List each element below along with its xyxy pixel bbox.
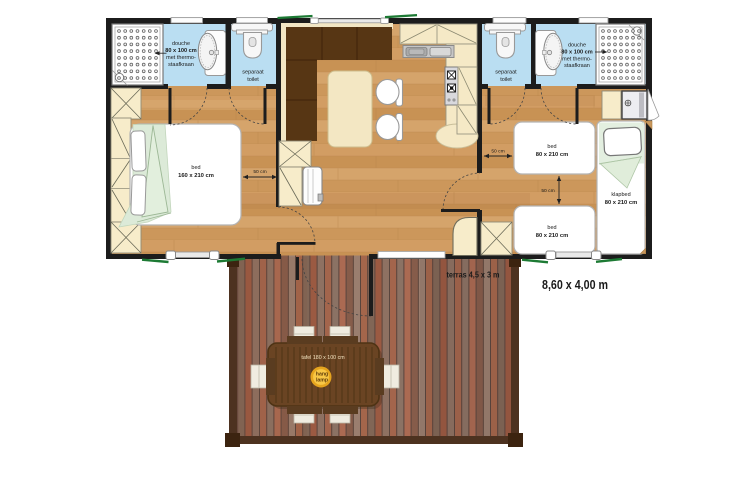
svg-text:bed: bed xyxy=(191,165,200,171)
svg-text:80 x 210 cm: 80 x 210 cm xyxy=(536,233,569,239)
svg-text:50 cm: 50 cm xyxy=(541,188,554,194)
svg-text:terras 4,5 x 3 m: terras 4,5 x 3 m xyxy=(447,271,500,280)
svg-text:80 x 210 cm: 80 x 210 cm xyxy=(605,200,638,206)
svg-text:toilet: toilet xyxy=(500,77,512,83)
svg-text:staafkraan: staafkraan xyxy=(564,63,590,69)
svg-text:50 cm: 50 cm xyxy=(491,149,504,155)
svg-text:douche: douche xyxy=(172,41,190,47)
svg-text:bed: bed xyxy=(547,225,556,231)
svg-text:met thermo-: met thermo- xyxy=(562,56,592,62)
svg-text:bed: bed xyxy=(547,144,556,150)
svg-text:8,60 x 4,00 m: 8,60 x 4,00 m xyxy=(542,277,608,292)
svg-text:80 x 100 cm: 80 x 100 cm xyxy=(561,50,592,56)
svg-text:160 x 210 cm: 160 x 210 cm xyxy=(178,173,214,179)
svg-text:lamp: lamp xyxy=(316,378,328,384)
svg-text:80 x 210 cm: 80 x 210 cm xyxy=(536,152,569,158)
svg-text:80 x 100 cm: 80 x 100 cm xyxy=(165,48,196,54)
svg-text:douche: douche xyxy=(568,43,586,49)
svg-text:50 cm: 50 cm xyxy=(253,169,266,175)
svg-text:separaat: separaat xyxy=(495,70,517,76)
svg-text:staafkraan: staafkraan xyxy=(168,62,194,68)
svg-text:tafel 180 x 100 cm: tafel 180 x 100 cm xyxy=(301,355,345,361)
svg-text:separaat: separaat xyxy=(242,70,264,76)
svg-text:klapbed: klapbed xyxy=(611,192,630,198)
svg-text:toilet: toilet xyxy=(247,77,259,83)
svg-text:met thermo-: met thermo- xyxy=(166,55,196,61)
